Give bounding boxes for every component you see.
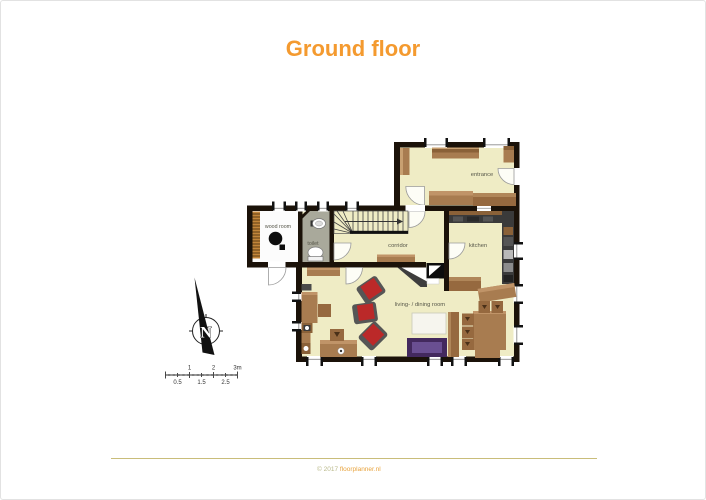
svg-text:living- / dining room: living- / dining room — [395, 302, 445, 308]
svg-text:0.5: 0.5 — [173, 380, 182, 386]
svg-text:Ground floor: Ground floor — [286, 36, 421, 61]
svg-text:kitchen: kitchen — [469, 243, 487, 249]
svg-text:toilet: toilet — [307, 241, 319, 247]
svg-text:1.5: 1.5 — [197, 380, 206, 386]
svg-text:3m: 3m — [233, 366, 241, 372]
svg-text:entrance: entrance — [471, 172, 494, 178]
svg-text:wood room: wood room — [265, 224, 292, 230]
svg-text:2.5: 2.5 — [221, 380, 230, 386]
svg-text:N: N — [200, 325, 212, 342]
svg-text:1: 1 — [188, 366, 192, 372]
svg-text:2: 2 — [212, 366, 216, 372]
svg-text:© 2017 floorplanner.nl: © 2017 floorplanner.nl — [317, 465, 381, 473]
svg-text:corridor: corridor — [388, 243, 408, 249]
